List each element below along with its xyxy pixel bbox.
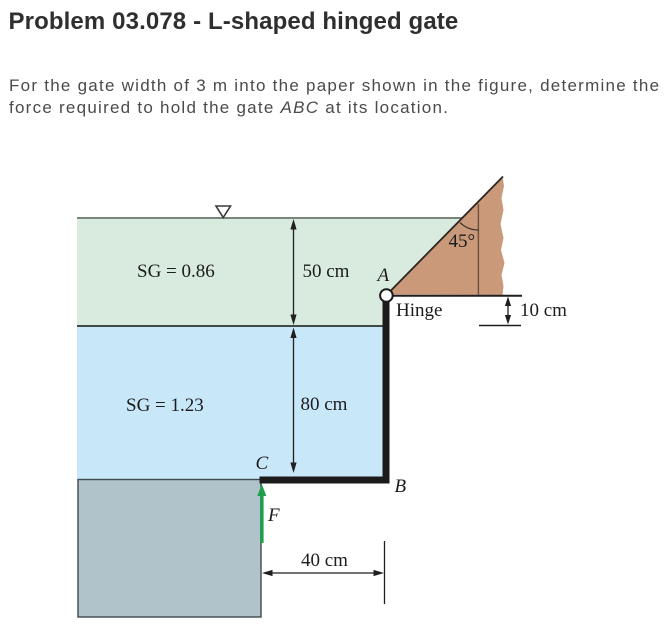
svg-text:45°: 45°	[449, 231, 476, 252]
svg-text:F: F	[267, 505, 280, 526]
svg-text:SG = 1.23: SG = 1.23	[126, 395, 204, 416]
svg-text:A: A	[376, 265, 390, 286]
svg-text:Hinge: Hinge	[396, 300, 442, 321]
svg-text:SG = 0.86: SG = 0.86	[137, 261, 215, 282]
svg-text:50 cm: 50 cm	[303, 261, 350, 282]
svg-text:B: B	[395, 476, 407, 497]
svg-text:40 cm: 40 cm	[301, 550, 348, 571]
svg-text:10 cm: 10 cm	[520, 300, 567, 321]
svg-text:80 cm: 80 cm	[301, 394, 348, 415]
svg-text:C: C	[256, 453, 269, 474]
